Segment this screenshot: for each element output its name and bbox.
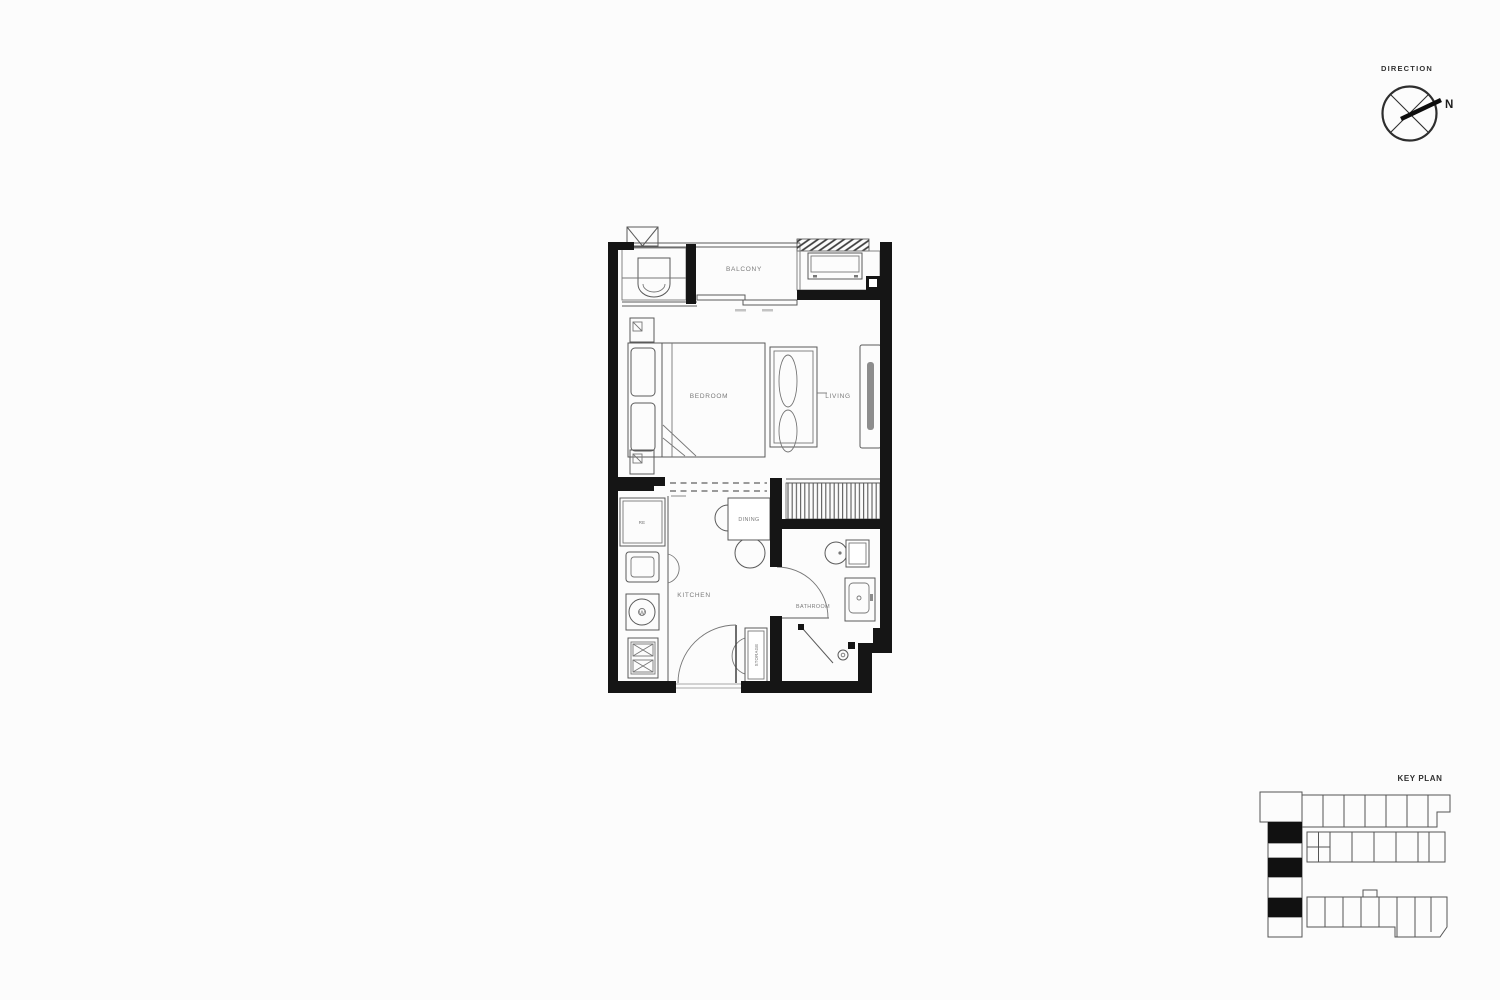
sofa bbox=[770, 347, 827, 452]
dimension-mark bbox=[671, 495, 686, 497]
floor-plan-drawing: BALCONY BEDROOM LIVING DINING KITCHEN BA… bbox=[597, 222, 897, 697]
dining-chair bbox=[735, 538, 765, 568]
bathroom-vanity bbox=[845, 578, 875, 621]
highlighted-units bbox=[1268, 822, 1302, 917]
storage-label: STORAGE bbox=[754, 644, 759, 667]
balcony-zone bbox=[622, 243, 800, 312]
toilet-tank bbox=[846, 540, 869, 567]
balcony-label: BALCONY bbox=[726, 266, 762, 273]
compass-icon bbox=[1383, 87, 1442, 141]
bathroom-label: BATHROOM bbox=[796, 604, 830, 610]
walls bbox=[608, 242, 892, 693]
overhead-beam bbox=[670, 483, 767, 497]
north-needle bbox=[1401, 100, 1441, 119]
condensing-unit-icon bbox=[638, 258, 670, 297]
refrigerator-label: RE bbox=[639, 520, 646, 525]
ac-grille-icon bbox=[797, 239, 869, 251]
toilet-bowl bbox=[825, 542, 847, 564]
nightstand bbox=[630, 450, 654, 474]
sliding-door-panel bbox=[743, 300, 797, 305]
bedroom-label: BEDROOM bbox=[690, 393, 729, 400]
hanging-clothes-icon bbox=[786, 483, 880, 519]
direction-indicator: DIRECTION N bbox=[1358, 56, 1463, 156]
highlighted-unit bbox=[1268, 822, 1302, 843]
floor-drain-icon bbox=[838, 650, 848, 660]
north-label: N bbox=[1445, 99, 1453, 111]
dining-set bbox=[715, 498, 770, 568]
condensing-unit-ledge bbox=[622, 227, 686, 300]
key-plan: KEY PLAN bbox=[1253, 766, 1463, 951]
dimension-mark bbox=[735, 309, 746, 312]
direction-title: DIRECTION bbox=[1381, 64, 1433, 73]
sliding-door-panel bbox=[697, 295, 745, 300]
shower bbox=[798, 624, 855, 663]
shower-door bbox=[803, 629, 833, 663]
wash-basin bbox=[849, 583, 869, 613]
bathroom-door bbox=[777, 567, 829, 618]
pillow bbox=[631, 348, 655, 396]
storage-cabinet bbox=[732, 628, 767, 682]
tv-console bbox=[860, 345, 881, 448]
kitchen-label: KITCHEN bbox=[677, 592, 710, 599]
floor-plan-page: BALCONY BEDROOM LIVING DINING KITCHEN BA… bbox=[0, 0, 1500, 1000]
dimension-mark bbox=[762, 309, 773, 312]
entrance-door bbox=[676, 625, 741, 688]
highlighted-unit bbox=[1268, 898, 1302, 917]
kitchen-counter bbox=[620, 496, 679, 681]
living-label: LIVING bbox=[825, 393, 851, 400]
dining-label: DINING bbox=[738, 517, 759, 523]
sofa-cushion bbox=[779, 410, 797, 452]
toilet bbox=[825, 540, 869, 567]
washer-label: W bbox=[639, 610, 646, 617]
nightstand bbox=[630, 318, 654, 342]
bed bbox=[628, 343, 765, 457]
pillow bbox=[631, 403, 655, 451]
key-plan-title: KEY PLAN bbox=[1397, 774, 1442, 783]
sofa-cushion bbox=[779, 355, 797, 407]
wardrobe bbox=[786, 479, 880, 519]
tv-screen bbox=[867, 362, 874, 430]
highlighted-unit bbox=[1268, 858, 1302, 877]
